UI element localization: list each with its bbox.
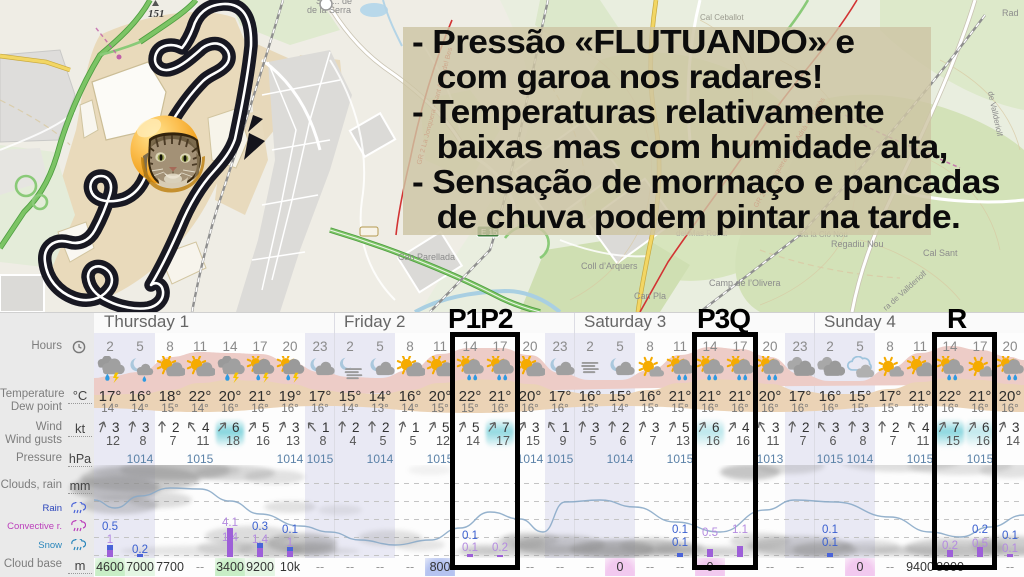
svg-text:Coll d’Arquers: Coll d’Arquers — [581, 261, 638, 271]
svg-text:Cal Ceballot: Cal Ceballot — [700, 13, 744, 22]
svg-text:Can Parellada: Can Parellada — [398, 252, 455, 262]
svg-text:Regadiu Nou: Regadiu Nou — [831, 239, 884, 249]
svg-text:Camp de l’Olivera: Camp de l’Olivera — [709, 278, 781, 288]
svg-text:151: 151 — [148, 8, 165, 20]
svg-text:Rad: Rad — [1002, 8, 1019, 18]
svg-text:Cal Sant: Cal Sant — [923, 248, 958, 258]
svg-text:Can Pla: Can Pla — [634, 291, 666, 301]
